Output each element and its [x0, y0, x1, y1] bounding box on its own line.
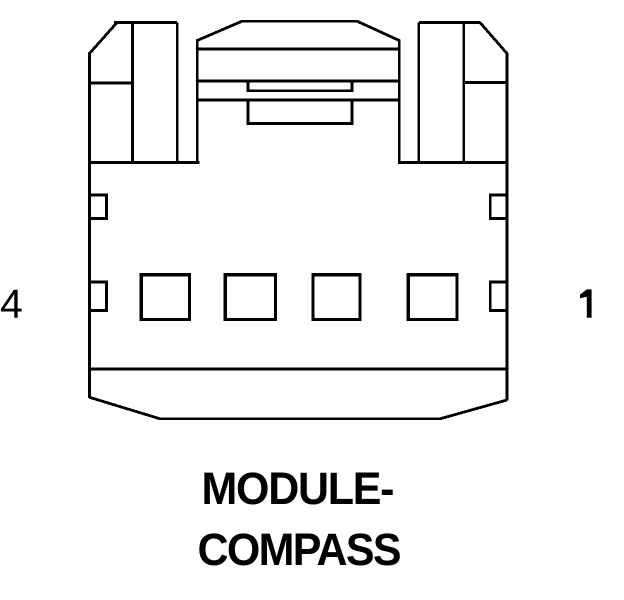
svg-text:4: 4: [0, 281, 23, 327]
svg-text:COMPASS: COMPASS: [198, 525, 402, 575]
svg-text:MODULE-: MODULE-: [202, 464, 395, 514]
